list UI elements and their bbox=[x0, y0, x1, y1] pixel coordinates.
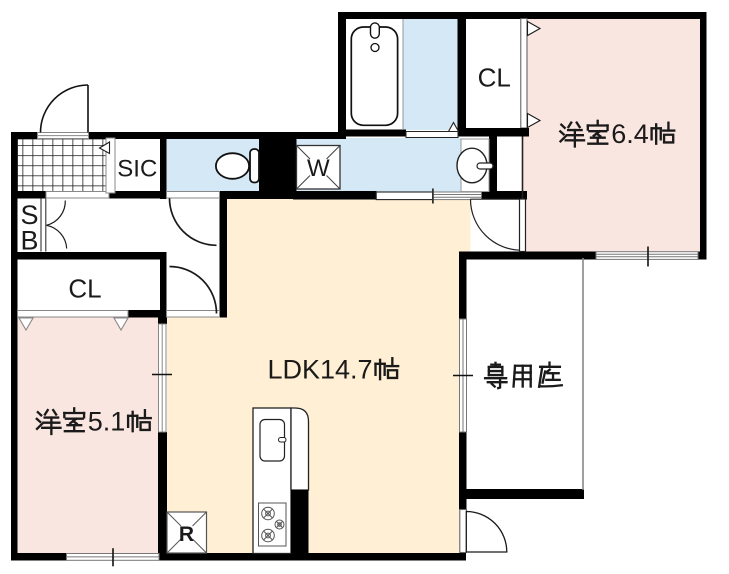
svg-text:6.4: 6.4 bbox=[611, 119, 649, 149]
svg-text:R: R bbox=[179, 523, 194, 546]
svg-text:LDK14.7: LDK14.7 bbox=[268, 355, 373, 385]
svg-text:SIC: SIC bbox=[117, 155, 157, 182]
svg-text:B: B bbox=[20, 226, 38, 256]
svg-text:5.1: 5.1 bbox=[88, 407, 126, 437]
svg-text:W: W bbox=[307, 155, 330, 182]
svg-text:CL: CL bbox=[478, 63, 511, 93]
svg-text:CL: CL bbox=[68, 274, 101, 304]
